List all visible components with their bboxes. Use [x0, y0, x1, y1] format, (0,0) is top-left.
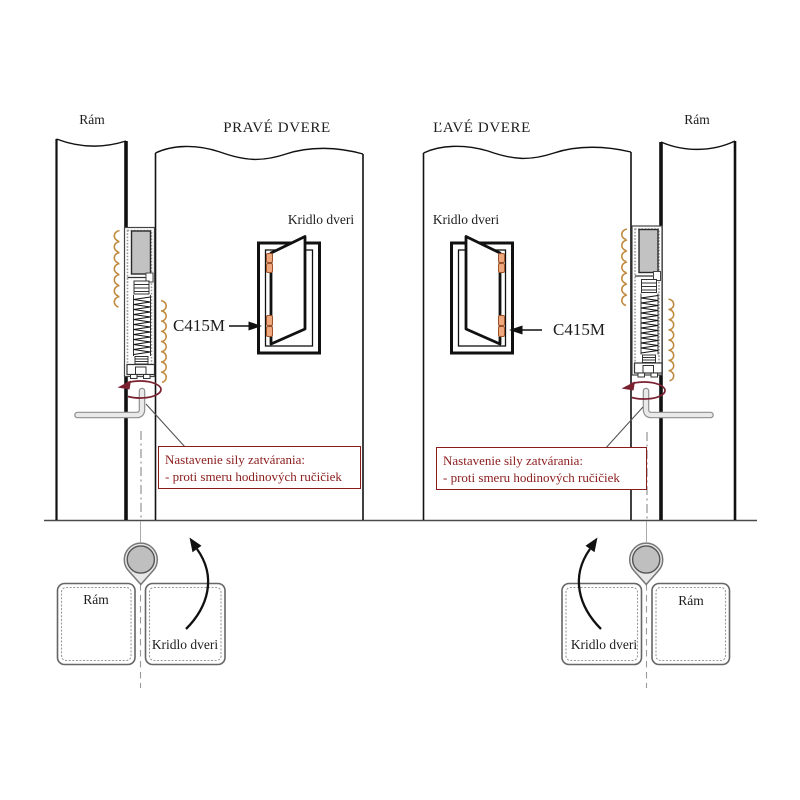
leaf-label-upper-left: Kridlo dveri	[288, 213, 354, 228]
plan-view-assembly-right	[562, 521, 730, 688]
frame-label-bottom-right: Rám	[678, 594, 704, 609]
model-label-left: C415M	[173, 317, 225, 336]
hex-key-icon-right	[646, 391, 711, 415]
piston-block	[132, 231, 151, 274]
hex-key-icon	[78, 391, 143, 415]
door-leaf	[271, 237, 305, 345]
frame-label-top-left: Rám	[79, 113, 105, 128]
model-label-right: C415M	[553, 321, 605, 340]
note-line-1: Nastavenie sily zatvárania:	[443, 452, 641, 469]
leaf-label-bottom-left: Kridlo dveri	[152, 638, 218, 653]
note-line-1: Nastavenie sily zatvárania:	[165, 451, 355, 468]
open-door-icon-right	[452, 237, 513, 354]
door-closer-mechanism	[114, 228, 166, 383]
left-frame	[57, 139, 127, 520]
diagram-canvas: Rám PRAVÉ DVERE ĽAVÉ DVERE Rám Kridlo dv…	[0, 0, 800, 800]
leaf-label-bottom-right: Kridlo dveri	[571, 638, 637, 653]
hinge-pivot-pin	[127, 546, 154, 573]
adjustment-note-right: Nastavenie sily zatvárania: - proti smer…	[436, 447, 647, 490]
leaf-label-upper-right: Kridlo dveri	[433, 213, 499, 228]
frame-label-top-right: Rám	[684, 113, 710, 128]
door-closer-diagram	[0, 0, 800, 800]
note-line-2: - proti smeru hodinových ručičiek	[165, 468, 355, 485]
title-left-door: ĽAVÉ DVERE	[433, 120, 531, 137]
adjustment-note-left: Nastavenie sily zatvárania: - proti smer…	[158, 446, 361, 489]
title-right-door: PRAVÉ DVERE	[223, 120, 331, 137]
frame-label-bottom-left: Rám	[83, 593, 109, 608]
note-leader-line-left	[146, 404, 185, 447]
note-leader-line-right	[604, 407, 643, 450]
door-closer-mechanism-right	[622, 226, 674, 381]
open-door-icon	[259, 237, 320, 354]
note-line-2: - proti smeru hodinových ručičiek	[443, 469, 641, 486]
